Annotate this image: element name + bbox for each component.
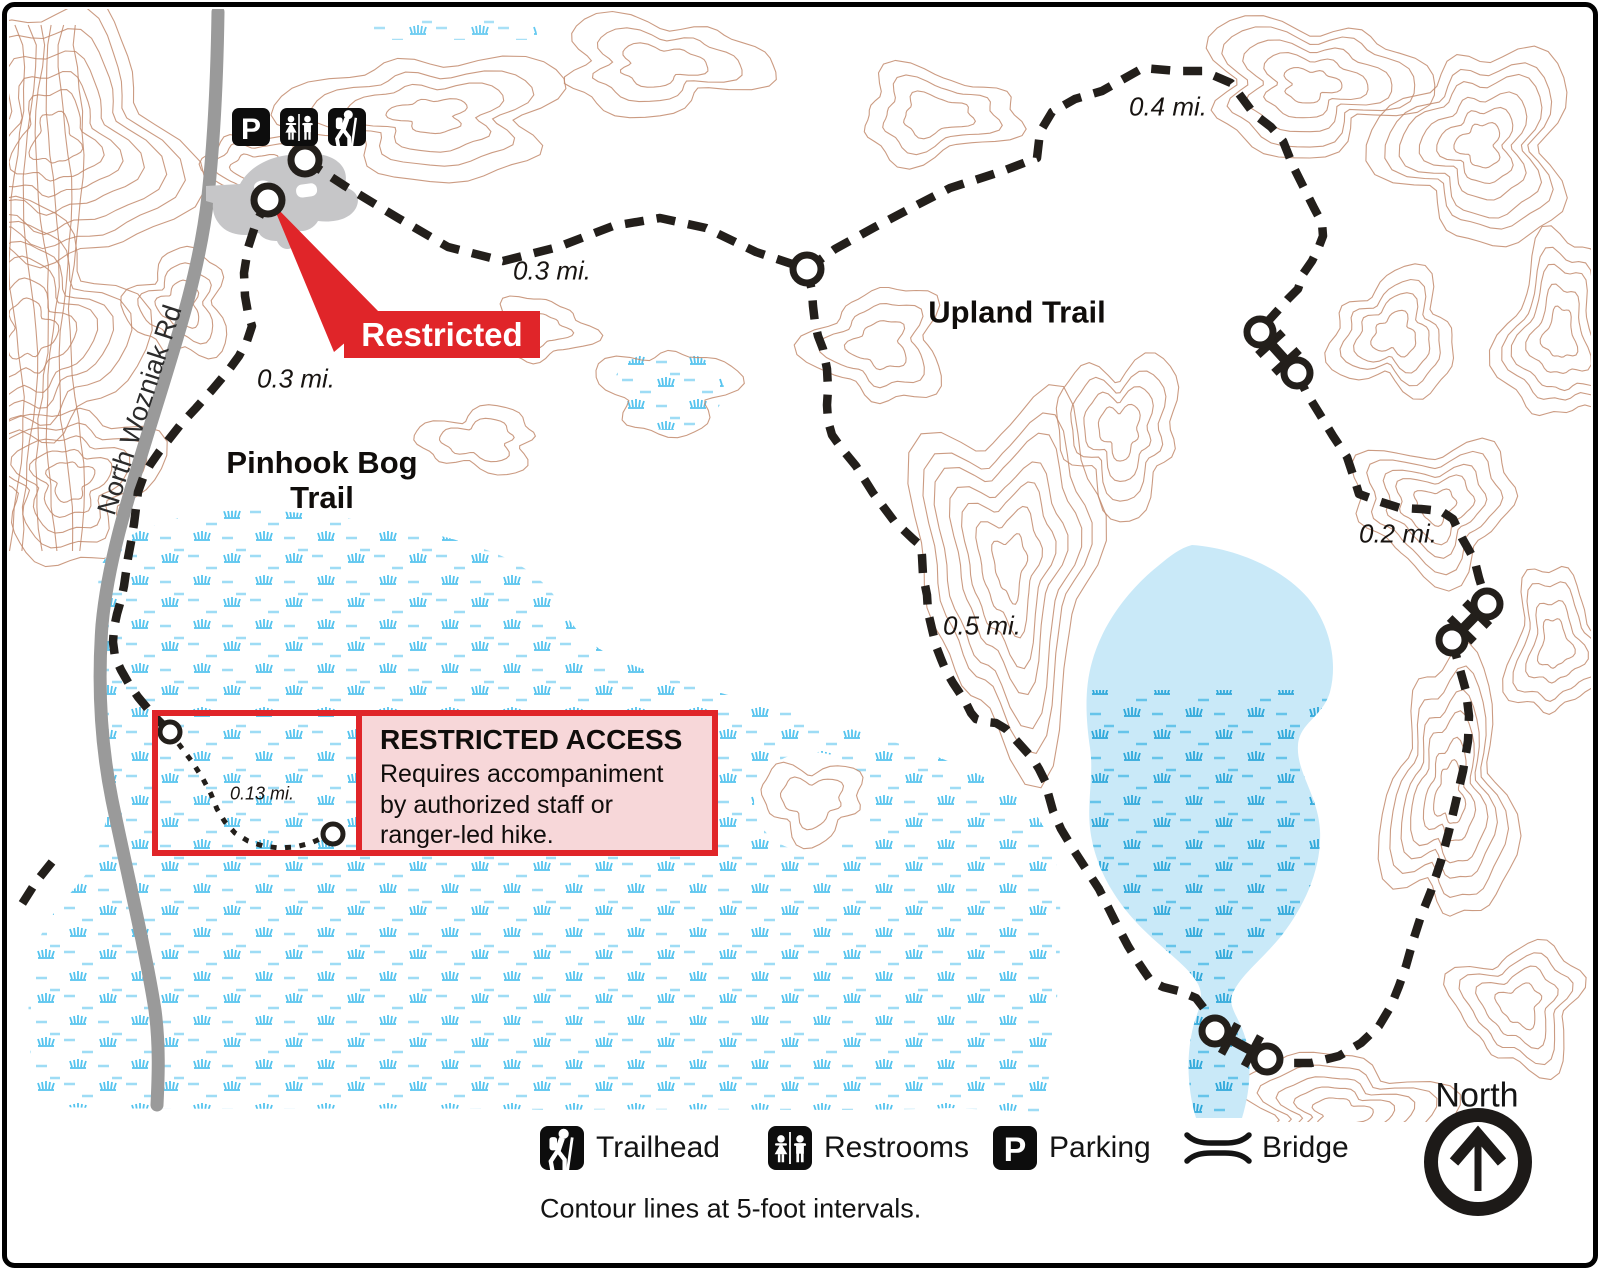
distance-label-upland: 0.4 mi.: [1129, 92, 1207, 123]
restricted-access-title: RESTRICTED ACCESS: [380, 724, 696, 756]
trail-segment-north: [305, 160, 807, 269]
distance-label-middle: 0.5 mi.: [943, 611, 1021, 642]
junction-marker: [291, 146, 319, 174]
distance-label-north: 0.3 mi.: [513, 256, 591, 287]
bridge-end-marker: [1254, 1046, 1280, 1072]
trail-stray-southwest: [22, 862, 52, 904]
small-marsh-patch: [612, 350, 724, 430]
bridge-end-marker: [1202, 1018, 1228, 1044]
pinhook-label-line2: Trail: [226, 480, 417, 515]
legend-label-trailhead: Trailhead: [596, 1131, 720, 1165]
restricted-area-inset: [158, 716, 362, 850]
parking-letter: P: [241, 113, 261, 146]
trail-upland-east: [1297, 373, 1487, 604]
bridge-end-marker: [1474, 591, 1500, 617]
contour-note: Contour lines at 5-foot intervals.: [540, 1194, 921, 1225]
bridge-end-marker: [1284, 360, 1310, 386]
north-compass: [1431, 1115, 1525, 1209]
legend-label-bridge: Bridge: [1262, 1131, 1349, 1165]
junction-marker: [793, 255, 821, 283]
bog-island: [754, 752, 870, 852]
bridge-end-marker: [1439, 627, 1465, 653]
pinhook-bog-trail-label: Pinhook Bog Trail: [226, 445, 417, 515]
distance-label-east: 0.2 mi.: [1359, 519, 1437, 550]
trail-map-canvas: P P: [0, 0, 1600, 1270]
junction-marker: [254, 186, 282, 214]
trail-upland-northeast: [807, 68, 1323, 332]
restricted-access-panel: RESTRICTED ACCESS Requires accompaniment…: [362, 716, 712, 850]
upland-trail-label: Upland Trail: [928, 295, 1105, 330]
legend-label-parking: Parking: [1049, 1131, 1151, 1165]
north-label: North: [1435, 1077, 1518, 1116]
restricted-access-body: Requires accompaniment by authorized sta…: [380, 759, 696, 851]
trail-map: P P: [0, 0, 1600, 1270]
top-marsh-sliver: [372, 14, 537, 40]
trailhead-facility-icons: P: [232, 108, 366, 147]
restricted-callout: Restricted: [344, 311, 540, 358]
restricted-access-box: RESTRICTED ACCESS Requires accompaniment…: [152, 710, 718, 856]
legend-label-restrooms: Restrooms: [824, 1131, 969, 1165]
bridge-end-marker: [1247, 319, 1273, 345]
distance-label-west: 0.3 mi.: [257, 364, 335, 395]
restricted-callout-text: Restricted: [361, 316, 522, 354]
parking-letter: P: [1004, 1131, 1027, 1169]
pinhook-label-line1: Pinhook Bog: [226, 445, 417, 480]
bog-marsh: [28, 14, 1060, 1112]
